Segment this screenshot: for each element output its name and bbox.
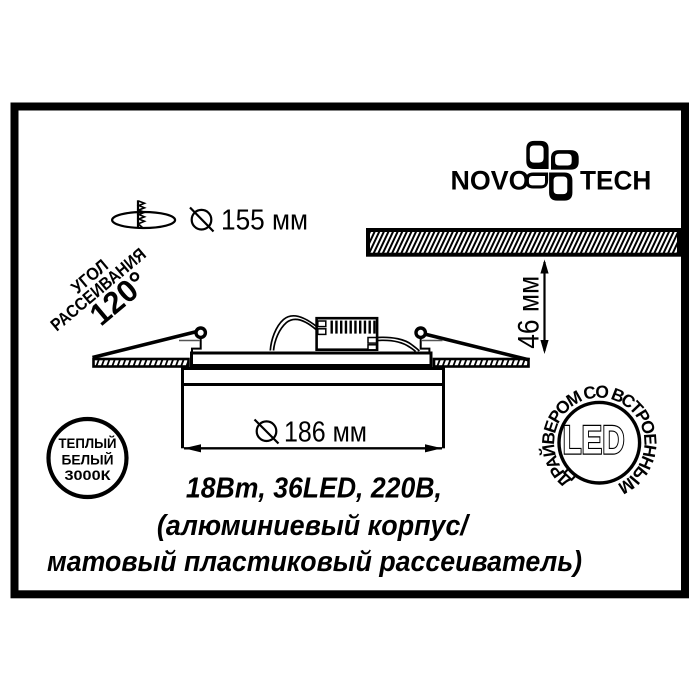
svg-text:18Вm, 36LED, 220В,: 18Вm, 36LED, 220В, xyxy=(186,473,442,505)
svg-text:46 мм: 46 мм xyxy=(513,276,546,349)
svg-text:3000К: 3000К xyxy=(65,468,111,484)
svg-text:ТЕПЛЫЙ: ТЕПЛЫЙ xyxy=(59,434,117,452)
svg-text:TECH: TECH xyxy=(580,166,651,196)
svg-text:матовый пластиковый рассеивате: матовый пластиковый рассеиватель) xyxy=(47,546,582,578)
svg-text:155 мм: 155 мм xyxy=(221,204,308,236)
svg-text:LED: LED xyxy=(563,419,625,463)
svg-text:NOVO: NOVO xyxy=(451,166,530,196)
svg-text:186 мм: 186 мм xyxy=(284,417,367,449)
svg-text:БЕЛЫЙ: БЕЛЫЙ xyxy=(62,450,114,468)
svg-text:(алюминиевый корпус/: (алюминиевый корпус/ xyxy=(157,510,471,542)
